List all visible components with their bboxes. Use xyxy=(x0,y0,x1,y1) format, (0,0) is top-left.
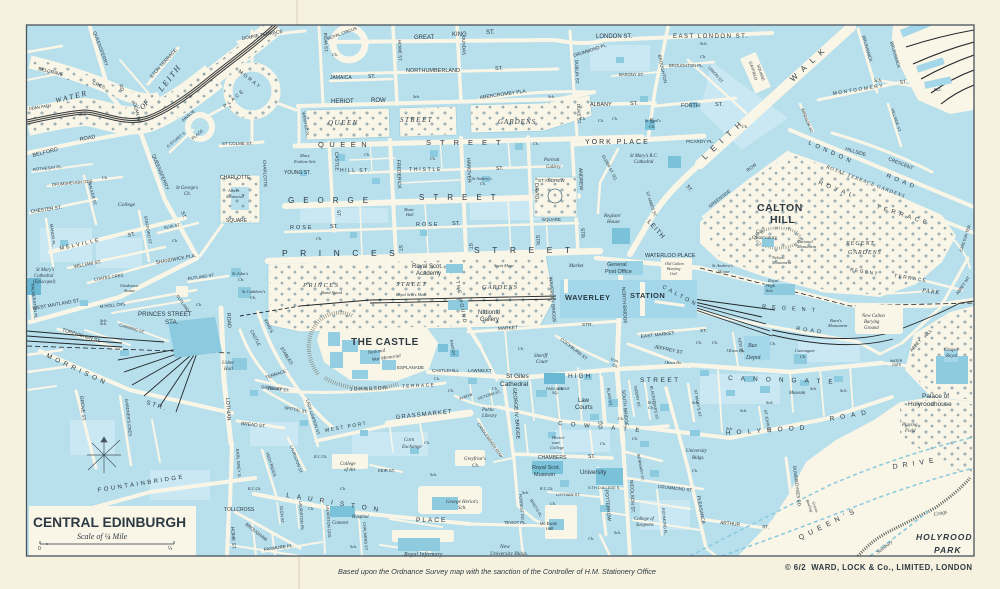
svg-text:Bldgs.: Bldgs. xyxy=(692,456,705,461)
svg-text:Ch.: Ch. xyxy=(102,175,108,180)
svg-text:Cathedral: Cathedral xyxy=(634,160,654,165)
svg-text:ST.: ST. xyxy=(715,102,723,108)
svg-text:Ch.: Ch. xyxy=(332,52,338,57)
svg-text:STREET: STREET xyxy=(426,138,510,147)
svg-text:WAVERLEY: WAVERLEY xyxy=(565,293,611,302)
svg-text:S.TH COLLEGE S.: S.TH COLLEGE S. xyxy=(588,486,620,490)
svg-text:Museum: Museum xyxy=(534,472,556,478)
svg-text:GEORGE: GEORGE xyxy=(288,196,377,205)
svg-text:Ch.: Ch. xyxy=(186,94,192,99)
svg-text:QUEEN: QUEEN xyxy=(328,119,359,127)
svg-text:STREET: STREET xyxy=(400,116,433,124)
svg-text:Ch.: Ch. xyxy=(533,141,539,146)
svg-text:College: College xyxy=(340,462,356,467)
svg-text:National: National xyxy=(478,310,500,316)
svg-text:EAST LONDON ST.: EAST LONDON ST. xyxy=(673,34,749,40)
svg-text:ST.: ST. xyxy=(496,166,503,172)
svg-text:Ch.: Ch. xyxy=(184,192,191,197)
svg-text:Ch.: Ch. xyxy=(518,346,524,351)
svg-text:Royal Scot's Mont: Royal Scot's Mont xyxy=(395,292,427,297)
svg-text:FREDERICK: FREDERICK xyxy=(395,160,402,190)
svg-text:Sheriff: Sheriff xyxy=(534,354,548,359)
svg-text:LOTHIAN ST.: LOTHIAN ST. xyxy=(556,492,580,497)
svg-text:STREET: STREET xyxy=(396,281,427,288)
svg-text:ST.: ST. xyxy=(649,118,655,125)
svg-text:Ch.: Ch. xyxy=(580,116,586,121)
svg-text:ROW: ROW xyxy=(371,98,386,104)
svg-text:Sch.: Sch. xyxy=(766,400,774,405)
svg-text:City: City xyxy=(756,230,765,235)
svg-text:GATE: GATE xyxy=(892,363,902,367)
svg-text:STR.: STR. xyxy=(582,322,593,328)
svg-text:R.C.Ch.: R.C.Ch. xyxy=(539,486,553,491)
svg-text:St Giles: St Giles xyxy=(506,373,530,380)
svg-text:HILL ST.: HILL ST. xyxy=(340,168,371,174)
svg-text:Ch.: Ch. xyxy=(692,468,698,473)
svg-text:DUBLIN ST.: DUBLIN ST. xyxy=(574,60,580,84)
svg-text:Exchange: Exchange xyxy=(401,445,422,450)
svg-text:Sch.: Sch. xyxy=(350,544,357,549)
svg-text:LAWNM.KT: LAWNM.KT xyxy=(468,368,492,373)
svg-text:St Mary's: St Mary's xyxy=(36,268,54,273)
svg-text:Hall: Hall xyxy=(546,526,553,531)
svg-text:STR.: STR. xyxy=(579,228,585,240)
svg-text:of Art: of Art xyxy=(344,468,356,473)
svg-text:Ch.: Ch. xyxy=(448,388,454,393)
svg-text:Weir: Weir xyxy=(78,113,87,118)
svg-text:FORTH: FORTH xyxy=(681,103,700,109)
svg-text:Public: Public xyxy=(481,408,495,413)
svg-text:ST.: ST. xyxy=(486,30,495,36)
svg-text:Ch.: Ch. xyxy=(618,416,624,421)
svg-text:SQUARE: SQUARE xyxy=(226,218,248,224)
svg-text:Sch.: Sch. xyxy=(726,426,733,431)
svg-text:(Episcopal): (Episcopal) xyxy=(33,280,56,285)
svg-text:St Andrew's: St Andrew's xyxy=(712,263,733,268)
svg-text:New: New xyxy=(499,544,510,550)
svg-text:STREET: STREET xyxy=(640,377,681,384)
svg-text:DUKE ST.: DUKE ST. xyxy=(576,104,582,124)
svg-text:STA.: STA. xyxy=(165,319,179,326)
svg-text:YORK PLACE: YORK PLACE xyxy=(585,139,650,146)
svg-text:Market: Market xyxy=(568,264,584,269)
svg-text:Courts: Courts xyxy=(575,405,593,411)
svg-text:Ch.: Ch. xyxy=(316,236,322,241)
svg-text:HILL: HILL xyxy=(770,214,795,226)
svg-text:PRINCES: PRINCES xyxy=(282,248,407,258)
svg-text:St Mary's R.C.: St Mary's R.C. xyxy=(630,154,658,159)
svg-text:Ch.: Ch. xyxy=(649,124,655,129)
svg-text:BROUGHTON PL.: BROUGHTON PL. xyxy=(669,63,704,68)
svg-text:PRINCES STREET: PRINCES STREET xyxy=(138,311,192,318)
svg-text:ST.: ST. xyxy=(335,210,341,217)
svg-text:University: University xyxy=(686,449,708,454)
svg-text:NORTHUMBERLAND: NORTHUMBERLAND xyxy=(406,68,460,74)
svg-text:Ch.: Ch. xyxy=(632,436,638,441)
svg-text:Statue: Statue xyxy=(124,288,135,293)
svg-text:CASTLEHILL: CASTLEHILL xyxy=(432,368,460,373)
svg-text:SQUARE: SQUARE xyxy=(542,217,561,222)
svg-text:PARK: PARK xyxy=(934,545,961,555)
svg-text:Ch.: Ch. xyxy=(472,464,479,469)
svg-text:Ch.: Ch. xyxy=(250,295,256,300)
svg-text:Monument: Monument xyxy=(827,323,848,328)
svg-text:Royal: Royal xyxy=(945,354,958,359)
svg-text:WATERLOO PLACE: WATERLOO PLACE xyxy=(645,253,696,259)
svg-text:SQ.: SQ. xyxy=(552,391,559,395)
svg-text:J.Knox Ho.: J.Knox Ho. xyxy=(664,360,682,365)
svg-text:ALBANY: ALBANY xyxy=(590,102,612,108)
svg-text:ST.: ST. xyxy=(467,243,473,250)
svg-text:PRINCES: PRINCES xyxy=(302,282,340,289)
svg-text:ST.: ST. xyxy=(330,224,338,230)
svg-text:Ch.: Ch. xyxy=(550,501,556,506)
svg-text:ST.: ST. xyxy=(700,328,707,334)
svg-text:Ch.: Ch. xyxy=(480,181,486,186)
svg-text:Royal Infirmary: Royal Infirmary xyxy=(403,551,443,558)
svg-text:Register: Register xyxy=(603,214,621,219)
svg-text:Ch.: Ch. xyxy=(770,341,776,346)
svg-text:Sch.: Sch. xyxy=(458,506,466,511)
svg-text:Based upon the Ordnance Survey: Based upon the Ordnance Survey map with … xyxy=(338,567,656,576)
svg-text:LONDON ST.: LONDON ST. xyxy=(596,34,632,40)
svg-text:ST ANDREW: ST ANDREW xyxy=(538,178,565,183)
svg-text:General: General xyxy=(607,262,627,268)
svg-text:New Calton: New Calton xyxy=(861,314,885,319)
svg-text:Playing: Playing xyxy=(901,423,918,428)
svg-text:Ch.: Ch. xyxy=(308,506,314,511)
svg-text:BARONY ST.: BARONY ST. xyxy=(619,72,644,77)
svg-text:University: University xyxy=(580,470,606,476)
svg-text:Post Office: Post Office xyxy=(605,269,632,275)
svg-text:Ch.: Ch. xyxy=(800,354,806,359)
svg-text:THE CASTLE: THE CASTLE xyxy=(351,337,419,348)
svg-text:DUNDAS: DUNDAS xyxy=(461,36,467,55)
svg-text:ST.: ST. xyxy=(630,101,638,107)
svg-text:ST COLME ST.: ST COLME ST. xyxy=(222,141,253,146)
svg-text:STR.: STR. xyxy=(534,235,540,247)
svg-text:Library: Library xyxy=(481,414,498,419)
svg-text:Albert: Albert xyxy=(227,188,240,193)
svg-text:Ch.: Ch. xyxy=(696,340,702,345)
svg-text:ANDREW: ANDREW xyxy=(577,168,584,191)
svg-text:Sch.: Sch. xyxy=(100,321,107,326)
svg-text:PICARDY PL.: PICARDY PL. xyxy=(686,139,714,144)
svg-text:Band Stand: Band Stand xyxy=(321,290,343,295)
svg-text:Sch.: Sch. xyxy=(840,388,848,393)
svg-text:Canongate: Canongate xyxy=(795,348,815,353)
svg-text:Royal Scot.: Royal Scot. xyxy=(532,465,561,471)
svg-text:Gallery: Gallery xyxy=(546,165,562,170)
svg-text:GREAT: GREAT xyxy=(414,35,435,41)
svg-text:Sch.: Sch. xyxy=(548,94,555,99)
svg-text:Corn: Corn xyxy=(404,438,415,443)
svg-text:ST.: ST. xyxy=(899,79,907,86)
svg-text:Bus: Bus xyxy=(748,343,758,349)
svg-text:Ch.: Ch. xyxy=(588,536,594,541)
svg-text:DAVID: DAVID xyxy=(533,183,540,200)
svg-text:Depot: Depot xyxy=(745,355,761,361)
svg-text:ST.: ST. xyxy=(762,524,770,531)
svg-text:College of: College of xyxy=(634,517,655,522)
svg-text:CENTRAL EDINBURGH: CENTRAL EDINBURGH xyxy=(33,515,186,530)
svg-text:Ch.: Ch. xyxy=(434,376,440,381)
svg-text:RD.: RD. xyxy=(934,87,942,92)
svg-text:Palace of: Palace of xyxy=(922,393,949,400)
svg-text:Sch.: Sch. xyxy=(522,490,529,495)
svg-text:JAMAICA: JAMAICA xyxy=(330,75,352,81)
svg-text:ROSE: ROSE xyxy=(290,225,314,231)
svg-text:CHAMBERS: CHAMBERS xyxy=(538,455,567,461)
svg-text:Memorial: Memorial xyxy=(225,194,244,199)
svg-text:HANOVER: HANOVER xyxy=(465,158,472,183)
svg-text:REGENT: REGENT xyxy=(845,241,875,247)
svg-text:THISTLE: THISTLE xyxy=(409,167,442,173)
svg-text:QUEEN: QUEEN xyxy=(318,140,372,149)
svg-text:Ch.: Ch. xyxy=(742,124,748,129)
svg-text:Sch.: Sch. xyxy=(430,472,437,477)
svg-text:PLACE: PLACE xyxy=(416,517,447,524)
svg-text:Law: Law xyxy=(578,398,590,404)
svg-text:Sch.: Sch. xyxy=(413,94,420,99)
svg-text:Sch.: Sch. xyxy=(614,530,621,535)
svg-text:Academy: Academy xyxy=(416,271,441,277)
svg-text:Hall: Hall xyxy=(405,212,414,217)
svg-text:Ch.: Ch. xyxy=(600,441,606,446)
svg-text:Ch.: Ch. xyxy=(364,152,370,157)
svg-text:Ground: Ground xyxy=(864,326,879,331)
svg-text:HERIOT: HERIOT xyxy=(331,99,354,105)
svg-text:YOUNG ST.: YOUNG ST. xyxy=(284,170,311,176)
svg-text:Ch.: Ch. xyxy=(424,440,430,445)
svg-text:Royal Scot.: Royal Scot. xyxy=(412,264,443,270)
svg-text:GARDENS: GARDENS xyxy=(848,250,882,256)
svg-text:Museum: Museum xyxy=(788,391,806,396)
svg-text:HOLYROOD: HOLYROOD xyxy=(916,532,972,542)
svg-text:Grd: Grd xyxy=(670,271,677,276)
svg-text:Sch.: Sch. xyxy=(874,79,882,84)
svg-text:Ch.: Ch. xyxy=(172,238,178,243)
svg-text:CASTLE: CASTLE xyxy=(333,152,340,171)
svg-text:Monument: Monument xyxy=(796,244,817,249)
svg-text:House: House xyxy=(606,220,621,225)
svg-text:Ch.: Ch. xyxy=(712,340,718,345)
svg-text:TOLLCROSS: TOLLCROSS xyxy=(224,507,255,513)
svg-text:Ch.: Ch. xyxy=(598,420,604,425)
svg-text:Ch.: Ch. xyxy=(700,54,706,59)
svg-text:CHARLOTTE: CHARLOTTE xyxy=(262,160,268,187)
svg-text:Monument: Monument xyxy=(771,260,792,265)
svg-text:Greyfriar's: Greyfriar's xyxy=(464,457,486,462)
svg-text:St George's: St George's xyxy=(176,186,198,191)
svg-text:© 6/2 WARD, LOCK & Co., LIMIT: © 6/2 WARD, LOCK & Co., LIMITED, LONDON xyxy=(785,563,972,572)
svg-text:ESPLANADE: ESPLANADE xyxy=(397,365,424,370)
svg-text:HOWE ST.: HOWE ST. xyxy=(397,40,403,62)
svg-text:ST.: ST. xyxy=(397,245,403,252)
svg-text:St Cuthbert's: St Cuthbert's xyxy=(242,289,266,294)
svg-text:St John's: St John's xyxy=(232,271,248,276)
svg-text:Hall: Hall xyxy=(223,367,234,372)
svg-text:Ch.: Ch. xyxy=(196,302,202,307)
svg-text:HIGH: HIGH xyxy=(568,373,592,380)
svg-text:GARDENS: GARDENS xyxy=(482,284,518,291)
svg-text:Scott Mont: Scott Mont xyxy=(494,263,514,268)
svg-text:Mary: Mary xyxy=(299,153,310,158)
svg-text:Gallery: Gallery xyxy=(480,317,499,323)
svg-text:Ch.: Ch. xyxy=(598,118,604,123)
svg-text:ST.: ST. xyxy=(368,74,375,80)
svg-text:Cathedral: Cathedral xyxy=(34,274,54,279)
svg-text:TEVIOT PL.: TEVIOT PL. xyxy=(504,520,527,525)
svg-text:Surgeons: Surgeons xyxy=(636,523,654,528)
svg-text:MARKET: MARKET xyxy=(498,325,518,332)
svg-text:Ch.: Ch. xyxy=(612,116,618,121)
svg-text:Scale of ¼ Mile: Scale of ¼ Mile xyxy=(77,532,128,541)
svg-text:Erskine Sch.: Erskine Sch. xyxy=(293,159,317,164)
svg-text:Ch.: Ch. xyxy=(492,386,498,391)
svg-text:Ch.: Ch. xyxy=(430,156,436,161)
svg-text:Field: Field xyxy=(904,429,916,434)
svg-text:Sch.: Sch. xyxy=(692,400,699,405)
svg-text:Convent: Convent xyxy=(332,521,349,526)
svg-text:Court: Court xyxy=(536,360,548,365)
svg-text:Sch.: Sch. xyxy=(740,408,747,413)
svg-text:ST.: ST. xyxy=(495,66,503,72)
svg-text:Chapel: Chapel xyxy=(944,348,959,353)
svg-text:George Heriot's: George Heriot's xyxy=(446,500,478,505)
svg-text:Usher: Usher xyxy=(222,361,234,366)
svg-text:ST.: ST. xyxy=(452,221,460,227)
svg-text:STREET: STREET xyxy=(419,193,505,202)
svg-text:Sch.: Sch. xyxy=(700,41,708,46)
svg-text:House: House xyxy=(717,269,730,274)
svg-text:College: College xyxy=(550,445,564,450)
svg-text:J.Knox Ho.: J.Knox Ho. xyxy=(726,348,745,353)
svg-text:STREET: STREET xyxy=(474,245,583,255)
svg-text:STATION: STATION xyxy=(630,291,665,300)
svg-text:Portrait: Portrait xyxy=(543,158,560,163)
svg-text:Sch.: Sch. xyxy=(766,288,774,293)
svg-text:Observatory: Observatory xyxy=(752,236,778,241)
svg-text:R.C.Ch.: R.C.Ch. xyxy=(313,454,327,459)
svg-text:Burying: Burying xyxy=(864,320,880,325)
svg-text:R.C.Ch.: R.C.Ch. xyxy=(247,486,261,491)
svg-text:CHARLOTTE: CHARLOTTE xyxy=(220,175,251,181)
svg-text:CALTON: CALTON xyxy=(757,202,803,214)
svg-text:Sch.: Sch. xyxy=(810,386,817,391)
svg-text:ROSE: ROSE xyxy=(416,222,440,228)
svg-text:Ch.: Ch. xyxy=(238,277,244,282)
svg-text:ST.: ST. xyxy=(588,454,595,460)
svg-text:GARDENS: GARDENS xyxy=(498,118,536,126)
svg-text:0: 0 xyxy=(38,546,41,552)
svg-text:Hospital: Hospital xyxy=(351,515,369,520)
svg-text:Ch.: Ch. xyxy=(340,486,346,491)
svg-text:ROAD: ROAD xyxy=(225,313,232,329)
svg-text:KEIR ST.: KEIR ST. xyxy=(378,468,395,473)
svg-text:Ch.: Ch. xyxy=(558,386,564,391)
svg-text:College: College xyxy=(118,202,136,208)
svg-text:Holyroodhouse: Holyroodhouse xyxy=(908,401,952,408)
svg-text:Ch.: Ch. xyxy=(648,405,654,410)
